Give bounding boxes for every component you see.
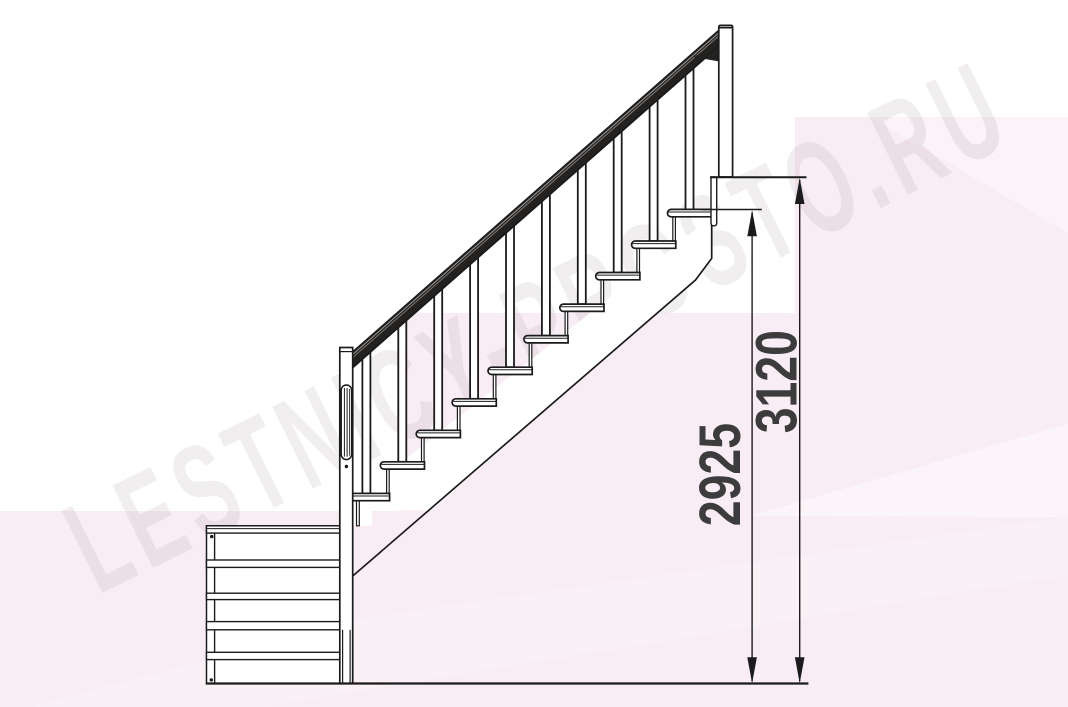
svg-text:2925: 2925 bbox=[688, 423, 753, 526]
svg-text:3120: 3120 bbox=[745, 330, 810, 433]
